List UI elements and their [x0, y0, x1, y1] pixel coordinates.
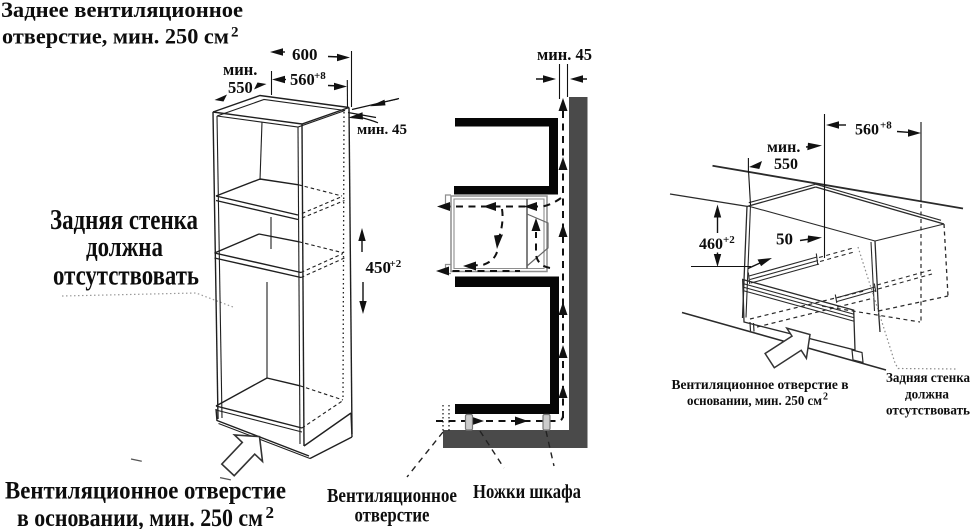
svg-text:460: 460 [699, 236, 723, 253]
svg-text:2: 2 [823, 392, 828, 403]
svg-text:550: 550 [774, 156, 798, 173]
svg-text:+8: +8 [314, 70, 326, 82]
svg-text:450: 450 [366, 258, 392, 277]
svg-text:Вентиляционное отверстие: Вентиляционное отверстие [5, 478, 286, 505]
svg-text:560: 560 [290, 70, 315, 89]
svg-text:+8: +8 [880, 120, 892, 132]
svg-text:мин. 45: мин. 45 [537, 45, 592, 64]
svg-text:должна: должна [86, 232, 163, 263]
svg-text:+2: +2 [390, 258, 402, 270]
svg-text:Заднее вентиляционное: Заднее вентиляционное [1, 0, 243, 22]
svg-text:50: 50 [776, 230, 793, 249]
svg-text:+2: +2 [723, 234, 735, 246]
svg-text:мин.: мин. [223, 60, 257, 79]
svg-text:Задняя стенка: Задняя стенка [886, 371, 970, 386]
svg-text:основании, мин. 250 см: основании, мин. 250 см [687, 394, 822, 409]
svg-text:отсутствовать: отсутствовать [886, 404, 970, 419]
svg-text:должна: должна [905, 387, 949, 402]
svg-text:Ножки шкафа: Ножки шкафа [473, 481, 581, 503]
svg-text:в основании, мин. 250 см: в основании, мин. 250 см [17, 505, 263, 529]
svg-text:отсутствовать: отсутствовать [53, 261, 199, 292]
svg-text:отверстие, мин. 250 см: отверстие, мин. 250 см [2, 24, 229, 49]
svg-text:600: 600 [292, 45, 318, 64]
svg-text:560: 560 [855, 122, 879, 139]
svg-text:мин.: мин. [767, 139, 800, 156]
svg-text:мин. 45: мин. 45 [357, 122, 407, 138]
svg-text:отверстие: отверстие [355, 505, 430, 527]
svg-text:2: 2 [266, 503, 275, 522]
svg-text:550: 550 [228, 78, 253, 97]
svg-text:2: 2 [231, 25, 239, 41]
